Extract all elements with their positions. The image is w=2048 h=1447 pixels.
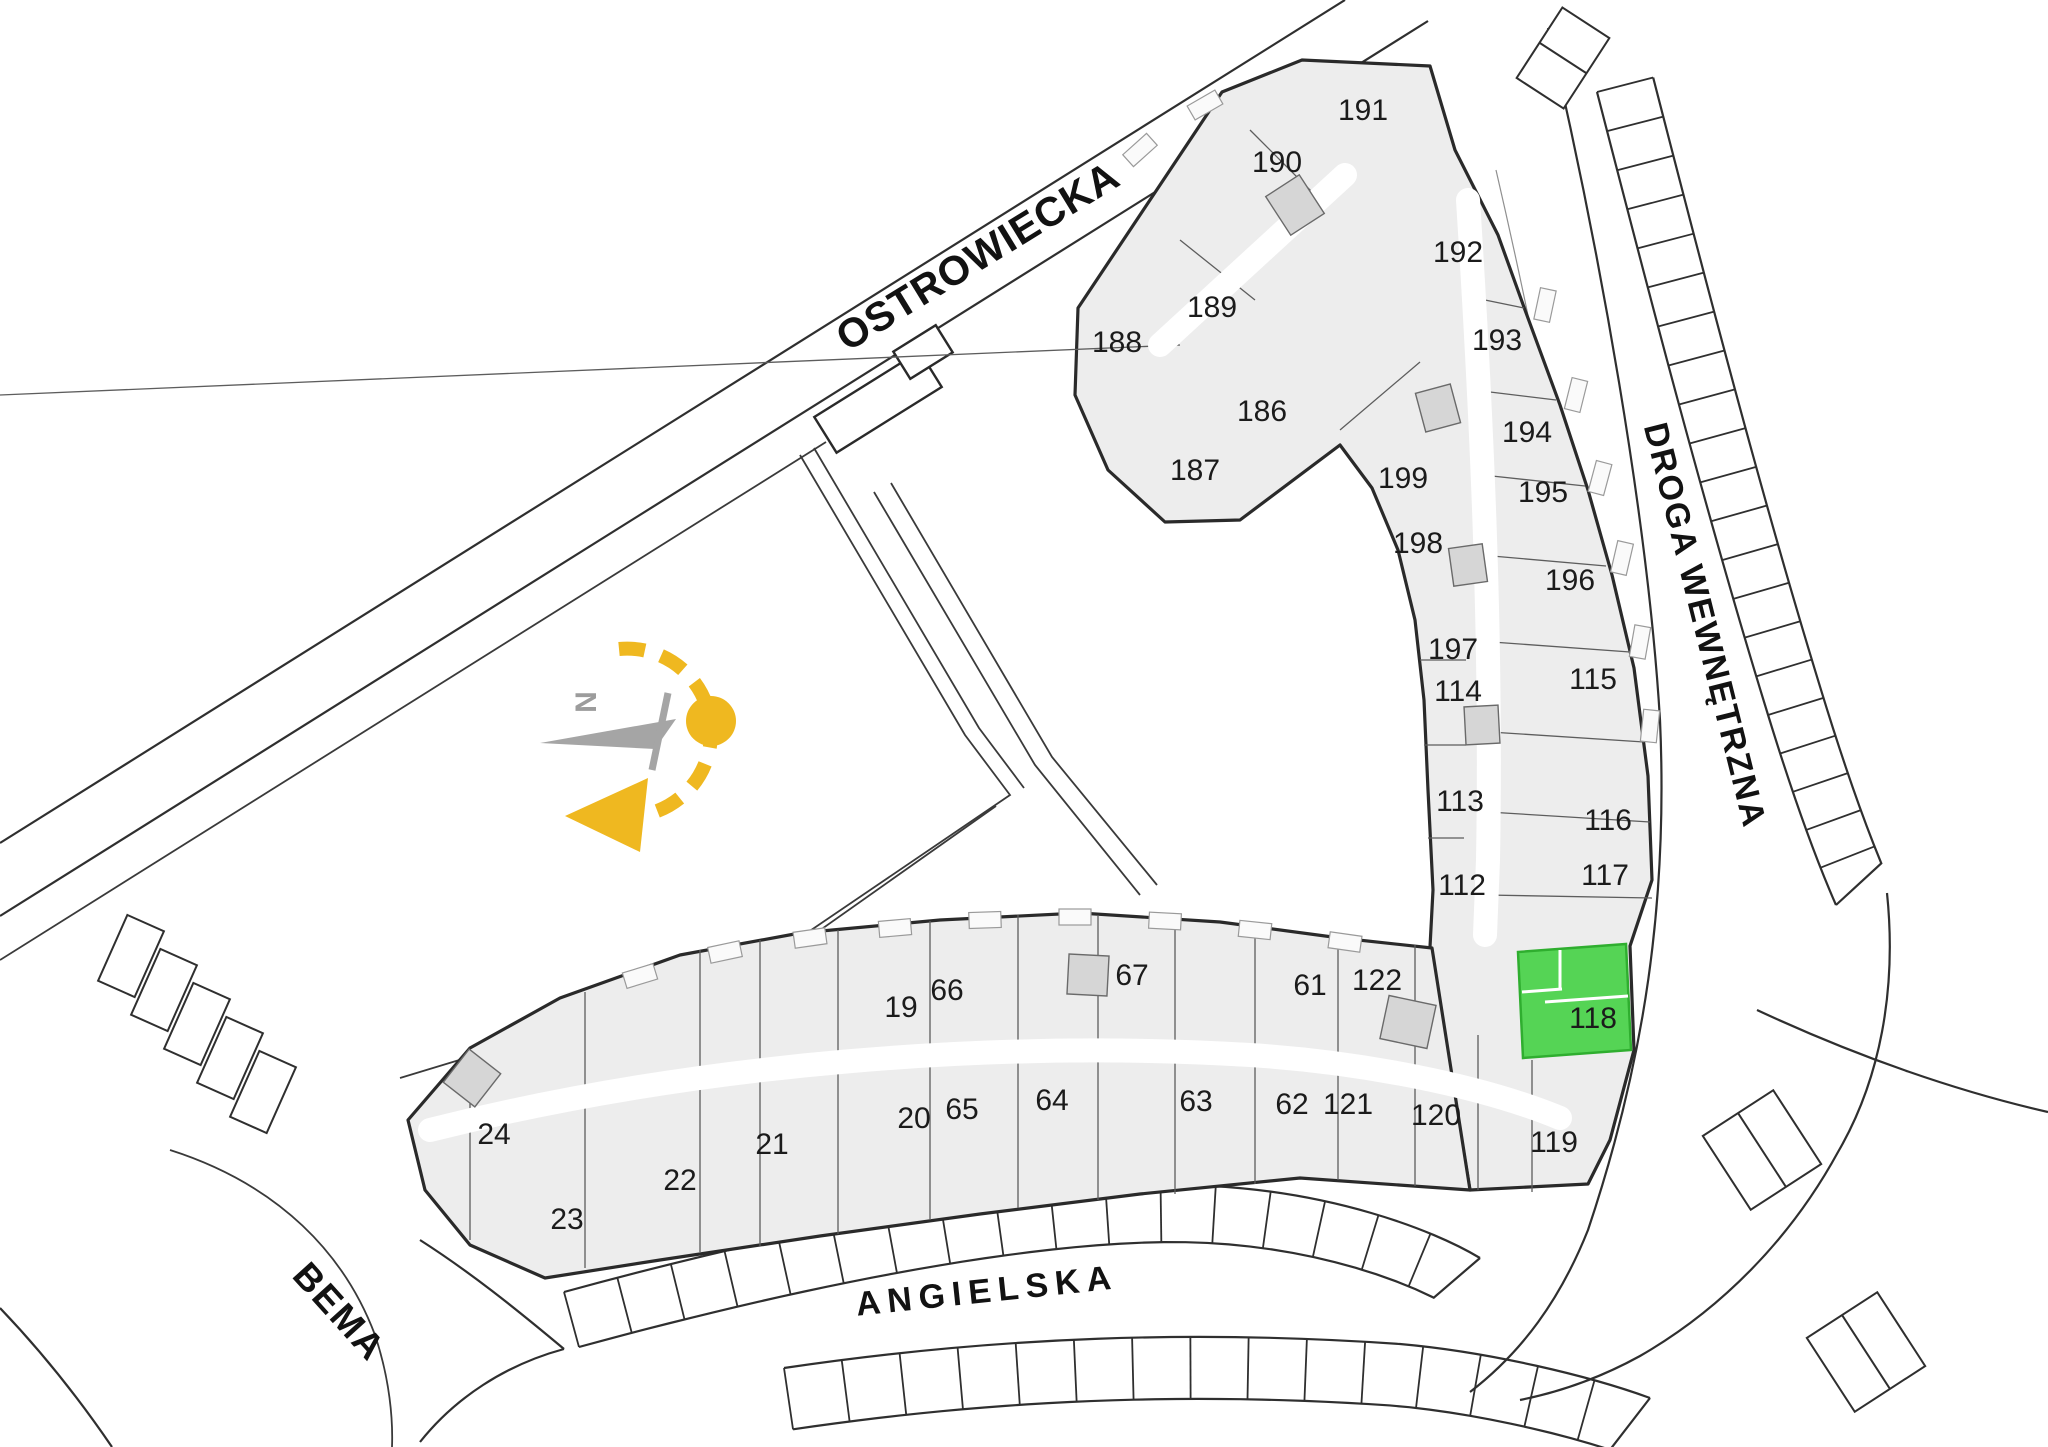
parking-stall-divider bbox=[900, 1353, 907, 1415]
unit-label-20[interactable]: 20 bbox=[897, 1102, 930, 1135]
parking-stall-divider bbox=[725, 1251, 738, 1306]
parking-stall-divider bbox=[1361, 1342, 1365, 1404]
parking-stall-divider bbox=[1617, 156, 1673, 171]
parking-stagger-bema bbox=[98, 915, 296, 1133]
unit-label-62[interactable]: 62 bbox=[1275, 1088, 1308, 1121]
parking-stall-divider bbox=[1756, 660, 1812, 677]
parking-stall-divider bbox=[1679, 389, 1735, 404]
bema-east-edge bbox=[170, 1150, 392, 1447]
parking-stall-divider bbox=[1313, 1201, 1325, 1257]
unit-label-23[interactable]: 23 bbox=[550, 1203, 583, 1236]
parking-stall-divider bbox=[564, 1292, 579, 1347]
site-plan: N OSTROWIECKADROGA WEWNĘTRZNABEMAANGIELS… bbox=[0, 0, 2048, 1447]
unit-label-191[interactable]: 191 bbox=[1338, 94, 1388, 127]
parking-stall-divider bbox=[1768, 698, 1823, 715]
parking-stall-divider bbox=[1627, 195, 1683, 210]
unit-label-199[interactable]: 199 bbox=[1378, 462, 1428, 495]
unit-label-119[interactable]: 119 bbox=[1530, 1126, 1578, 1159]
footpath-a bbox=[770, 455, 1010, 958]
unit-label-192[interactable]: 192 bbox=[1433, 236, 1483, 269]
parking-stall-divider bbox=[671, 1264, 685, 1319]
street-label-bema: BEMA bbox=[285, 1254, 394, 1368]
unit-label-190[interactable]: 190 bbox=[1252, 146, 1302, 179]
unit-label-196[interactable]: 196 bbox=[1545, 564, 1595, 597]
unit-label-63[interactable]: 63 bbox=[1179, 1085, 1212, 1118]
parking-stall-divider bbox=[1161, 1185, 1162, 1242]
footpath-a2 bbox=[814, 448, 1024, 788]
footpath-b2 bbox=[891, 483, 1157, 885]
unit-label-114[interactable]: 114 bbox=[1434, 675, 1482, 708]
unit-label-67[interactable]: 67 bbox=[1115, 959, 1148, 992]
compass-dot-icon bbox=[686, 696, 736, 746]
unit-label-116[interactable]: 116 bbox=[1584, 804, 1632, 837]
site-plan-canvas: N OSTROWIECKADROGA WEWNĘTRZNABEMAANGIELS… bbox=[0, 0, 2048, 1447]
driveway-exit-east bbox=[1757, 1010, 2048, 1112]
footpath-b bbox=[874, 492, 1140, 895]
parking-stall-divider bbox=[784, 1368, 793, 1429]
unit-label-187[interactable]: 187 bbox=[1170, 454, 1220, 487]
parking-stall-divider bbox=[1212, 1186, 1215, 1243]
compass: N bbox=[540, 649, 736, 852]
parking-stall-divider bbox=[1722, 544, 1778, 560]
compass-arrowhead-icon bbox=[565, 778, 648, 852]
parking-stall-divider bbox=[1304, 1339, 1306, 1401]
parking-stall-divider bbox=[1578, 1380, 1595, 1440]
parking-stall-divider bbox=[1658, 312, 1714, 327]
parking-stall-divider bbox=[1416, 1346, 1423, 1408]
parking-stall-divider bbox=[1597, 78, 1653, 92]
unit-label-112[interactable]: 112 bbox=[1438, 869, 1486, 902]
parking-stall-divider bbox=[1132, 1338, 1133, 1400]
parking-stall-divider bbox=[1690, 428, 1746, 443]
parking-stall-divider bbox=[1263, 1192, 1271, 1248]
unit-label-193[interactable]: 193 bbox=[1472, 324, 1522, 357]
parking-stall-divider bbox=[1806, 810, 1861, 830]
parking-stall-divider bbox=[1074, 1340, 1077, 1402]
unit-label-64[interactable]: 64 bbox=[1035, 1084, 1068, 1117]
unit-label-194[interactable]: 194 bbox=[1502, 416, 1552, 449]
unit-label-120[interactable]: 120 bbox=[1411, 1099, 1461, 1132]
unit-label-198[interactable]: 198 bbox=[1393, 527, 1443, 560]
parking-stall-divider bbox=[1745, 621, 1801, 637]
unit-label-188[interactable]: 188 bbox=[1092, 326, 1142, 359]
parking-pair-1 bbox=[1703, 1090, 1821, 1210]
parking-stall-divider bbox=[958, 1347, 963, 1409]
unit-label-195[interactable]: 195 bbox=[1518, 476, 1568, 509]
parking-top-group bbox=[1517, 8, 1610, 109]
unit-label-19[interactable]: 19 bbox=[884, 991, 917, 1024]
parking-stall-divider bbox=[1016, 1343, 1020, 1405]
parking-stall-divider bbox=[1362, 1215, 1379, 1270]
unit-label-122[interactable]: 122 bbox=[1352, 964, 1402, 997]
compass-north-label: N bbox=[570, 691, 603, 713]
parking-stall-divider bbox=[1733, 583, 1789, 599]
parking-stall-divider bbox=[1648, 273, 1704, 288]
unit-label-61[interactable]: 61 bbox=[1293, 969, 1326, 1002]
unit-label-189[interactable]: 189 bbox=[1187, 291, 1237, 324]
parking-outer-edge bbox=[793, 1398, 1650, 1447]
parking-stall-divider bbox=[1821, 846, 1875, 867]
unit-label-65[interactable]: 65 bbox=[945, 1093, 978, 1126]
parking-stall-divider bbox=[1780, 736, 1835, 754]
unit-label-24[interactable]: 24 bbox=[477, 1118, 510, 1151]
unit-label-186[interactable]: 186 bbox=[1237, 395, 1287, 428]
parking-stall-divider bbox=[1700, 467, 1756, 483]
unit-label-66[interactable]: 66 bbox=[930, 974, 963, 1007]
unit-label-21[interactable]: 21 bbox=[755, 1128, 788, 1161]
unit-label-197[interactable]: 197 bbox=[1428, 633, 1478, 666]
unit-label-117[interactable]: 117 bbox=[1581, 859, 1629, 892]
parking-stall-divider bbox=[832, 1227, 843, 1283]
parking-stall-divider bbox=[778, 1239, 790, 1295]
parking-stall-divider bbox=[1711, 506, 1767, 522]
parking-stall-divider bbox=[1248, 1337, 1249, 1399]
parking-stall-divider bbox=[1668, 350, 1724, 365]
bema-west-edge bbox=[0, 1308, 112, 1447]
parking-stall-divider bbox=[1409, 1234, 1431, 1287]
parking-stall-divider bbox=[842, 1360, 850, 1421]
unit-label-121[interactable]: 121 bbox=[1323, 1088, 1373, 1121]
street-label-angielska: ANGIELSKA bbox=[854, 1258, 1120, 1323]
unit-label-113[interactable]: 113 bbox=[1436, 785, 1484, 818]
parking-stall-divider bbox=[1607, 117, 1663, 131]
selected-unit[interactable] bbox=[1518, 944, 1631, 1058]
parking-pair-2 bbox=[1807, 1292, 1925, 1412]
unit-label-115[interactable]: 115 bbox=[1569, 663, 1617, 696]
unit-label-22[interactable]: 22 bbox=[663, 1164, 696, 1197]
parking-stall-divider bbox=[1793, 773, 1848, 792]
unit-label-118[interactable]: 118 bbox=[1569, 1002, 1617, 1035]
parking-stall-divider bbox=[1637, 234, 1693, 249]
parking-stall-divider bbox=[617, 1278, 631, 1333]
